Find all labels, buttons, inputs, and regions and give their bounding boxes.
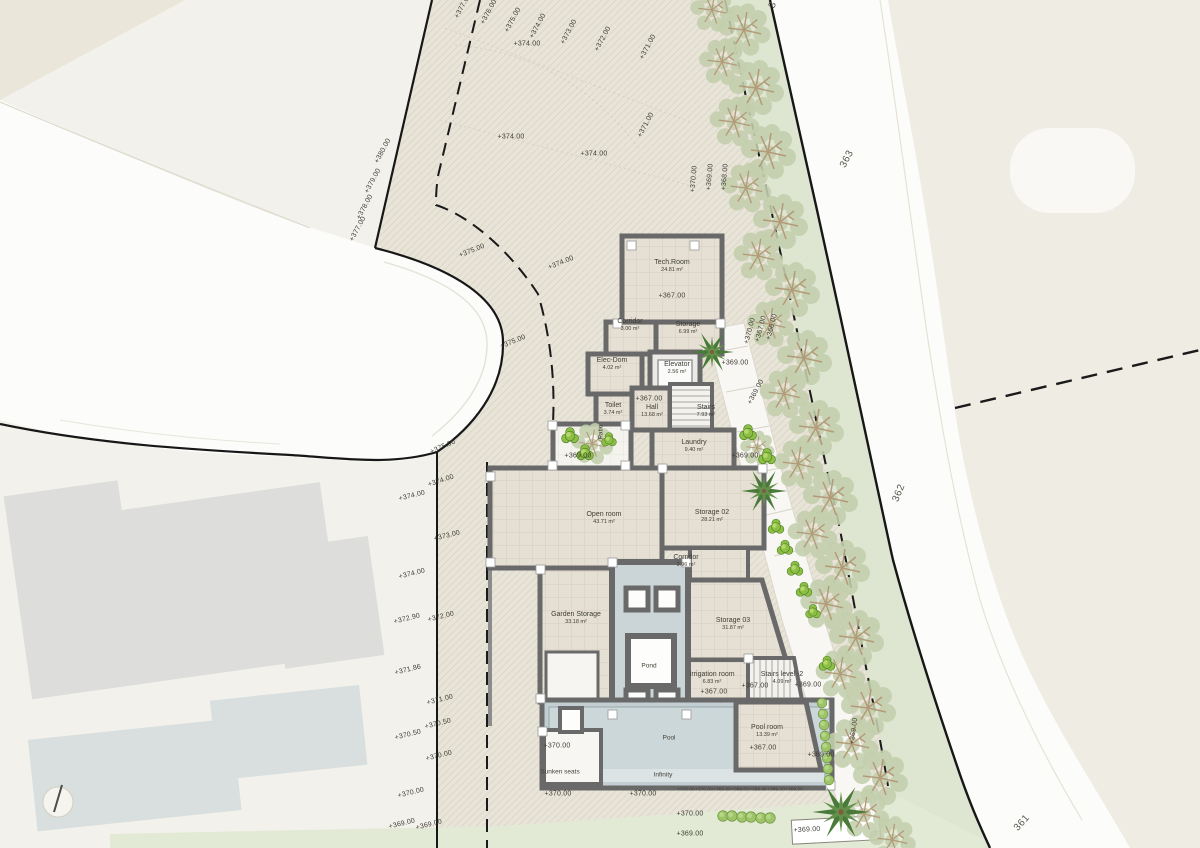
elevation-label: +371.00 bbox=[637, 111, 656, 138]
elevation-label: +375.00 bbox=[429, 438, 456, 455]
room-name: Open room bbox=[586, 511, 621, 519]
room-label: Laundry9.40 m² bbox=[681, 439, 706, 453]
elevation-label: +369.00 bbox=[785, 788, 802, 793]
elevation-label: +370.00 bbox=[544, 743, 571, 750]
room-name: Pool room bbox=[751, 724, 783, 732]
room-area: 6.99 m² bbox=[676, 329, 701, 335]
elevation-label: +369.40 bbox=[749, 788, 766, 793]
room-label: Pool room13.39 m² bbox=[751, 724, 783, 738]
room-name: Hall bbox=[641, 404, 663, 412]
elevation-label: +369.00 bbox=[808, 752, 835, 759]
elevation-label: +369.00 bbox=[722, 360, 749, 367]
feature-label: Patio bbox=[598, 425, 605, 440]
elevation-label: +370.00 bbox=[677, 788, 694, 793]
room-area: 2.56 m² bbox=[664, 369, 690, 375]
elevation-label: +369.00 bbox=[849, 717, 860, 745]
road-number: 363 bbox=[838, 148, 856, 169]
elevation-label: +374.00 bbox=[547, 255, 575, 272]
elevation-label: +369.20 bbox=[767, 788, 784, 793]
elevation-label: +370.00 bbox=[630, 791, 657, 798]
room-name: Elevator bbox=[664, 361, 690, 369]
elevation-label: +369.00 bbox=[388, 817, 416, 830]
elevation-label: +370.00 bbox=[689, 165, 698, 192]
elevation-label: +369.00 bbox=[705, 163, 714, 190]
room-name: Storage 03 bbox=[716, 617, 750, 625]
elevation-label: +371.00 bbox=[426, 693, 454, 706]
room-name: Garden Storage bbox=[551, 611, 601, 619]
elevation-label: +370.50 bbox=[424, 717, 452, 730]
elevation-label: +369.00 bbox=[415, 818, 443, 831]
room-area: 43.71 m² bbox=[586, 519, 621, 525]
elevation-label: +367.00 bbox=[636, 396, 663, 403]
room-label: Hall13.68 m² bbox=[641, 404, 663, 418]
elevation-label: +378.00 bbox=[356, 193, 375, 220]
road-number: 362 bbox=[890, 483, 907, 504]
room-name: Storage bbox=[676, 321, 701, 329]
elevation-label: +371.00 bbox=[639, 33, 658, 60]
elevation-label: +374.00 bbox=[514, 41, 541, 48]
room-area: 31.87 m² bbox=[716, 625, 750, 631]
elevation-label: +367.00 bbox=[659, 293, 686, 300]
elevation-label: +375.00 bbox=[499, 334, 527, 351]
elevation-label: +370.00 bbox=[677, 811, 704, 818]
elevation-label: +374.00 bbox=[398, 489, 426, 502]
elevation-label: +371.86 bbox=[394, 663, 422, 676]
elevation-label: +374.00 bbox=[498, 134, 525, 141]
room-area: 9.40 m² bbox=[681, 447, 706, 453]
feature-label: Sunken seats bbox=[540, 769, 579, 776]
room-name: Storage 02 bbox=[695, 509, 729, 517]
elevation-label: +370.00 bbox=[397, 786, 425, 799]
road-number: 361 bbox=[1012, 813, 1032, 834]
elevation-label: +370.00 bbox=[695, 788, 712, 793]
elevation-label: +370.00 bbox=[425, 749, 453, 762]
elevation-label: +374.00 bbox=[581, 151, 608, 158]
room-name: Corridor bbox=[617, 318, 642, 326]
room-name: Corridor bbox=[673, 554, 698, 562]
elevation-label: +377.00 bbox=[454, 0, 473, 20]
room-name: Toilet bbox=[604, 402, 623, 410]
elevation-label: +375.00 bbox=[458, 243, 486, 260]
elevation-label: +374.00 bbox=[427, 474, 455, 489]
elevation-label: +375.00 bbox=[504, 6, 523, 33]
elevation-label: +369.60 bbox=[731, 788, 748, 793]
elevation-label: +367.00 bbox=[750, 745, 777, 752]
elevation-label: +369.00 bbox=[793, 826, 820, 834]
room-area: 3.74 m² bbox=[604, 410, 623, 416]
room-area: 4.02 m² bbox=[597, 365, 628, 371]
room-label: Stairs7.93 m² bbox=[697, 404, 716, 418]
road-number: 3 bbox=[767, 0, 779, 9]
room-label: Elec-Dom4.02 m² bbox=[597, 357, 628, 371]
elevation-label: +367.00 bbox=[701, 689, 728, 696]
feature-label: Infinity bbox=[654, 772, 673, 779]
room-area: 7.93 m² bbox=[697, 412, 716, 418]
elevation-label: +372.90 bbox=[393, 612, 421, 625]
elevation-label: +374.00 bbox=[529, 12, 548, 39]
elevation-label: +373.00 bbox=[560, 18, 579, 45]
room-label: Open room43.71 m² bbox=[586, 511, 621, 525]
elevation-label: +372.00 bbox=[594, 25, 613, 52]
room-label: Storage6.99 m² bbox=[676, 321, 701, 335]
room-area: 6.83 m² bbox=[689, 679, 734, 685]
site-plan: +377.00+376.00+375.00+374.00+373.00+372.… bbox=[0, 0, 1200, 848]
room-area: 24.81 m² bbox=[654, 267, 689, 273]
elevation-label: +370.00 bbox=[545, 791, 572, 798]
elevation-label: +369.80 bbox=[713, 788, 730, 793]
room-label: Irrigation room6.83 m² bbox=[689, 671, 734, 685]
room-label: Garden Storage33.18 m² bbox=[551, 611, 601, 625]
room-label: Toilet3.74 m² bbox=[604, 402, 623, 416]
room-area: 13.68 m² bbox=[641, 412, 663, 418]
room-area: 4.09 m² bbox=[761, 679, 803, 685]
elevation-label: +373.00 bbox=[433, 529, 461, 542]
room-name: Irrigation room bbox=[689, 671, 734, 679]
elevation-label: +369.00 bbox=[747, 378, 766, 405]
feature-label: Pool bbox=[662, 735, 675, 742]
elevation-label: +379.00 bbox=[364, 167, 383, 194]
elevation-label: +374.00 bbox=[398, 567, 426, 580]
elevation-label: +377.00 bbox=[349, 215, 368, 242]
elevation-label: +368.00 bbox=[720, 163, 729, 190]
elevation-label: +370.50 bbox=[394, 728, 422, 741]
room-name: Laundry bbox=[681, 439, 706, 447]
room-area: 3.00 m² bbox=[617, 326, 642, 332]
room-label: Stairs level -24.09 m² bbox=[761, 671, 803, 685]
room-label: Storage 0331.87 m² bbox=[716, 617, 750, 631]
room-area: 13.39 m² bbox=[751, 732, 783, 738]
room-label: Corridor3.00 m² bbox=[617, 318, 642, 332]
feature-label: Pond bbox=[641, 663, 656, 670]
elevation-label: +380.00 bbox=[374, 137, 393, 164]
elevation-label: +369.00 bbox=[732, 453, 759, 460]
elevation-label: +369.00 bbox=[565, 453, 592, 460]
room-name: Elec-Dom bbox=[597, 357, 628, 365]
room-name: Stairs bbox=[697, 404, 716, 412]
room-area: 33.18 m² bbox=[551, 619, 601, 625]
plan-labels: +377.00+376.00+375.00+374.00+373.00+372.… bbox=[0, 0, 1200, 848]
room-label: Elevator2.56 m² bbox=[664, 361, 690, 375]
room-area: 2.96 m² bbox=[673, 562, 698, 568]
room-area: 28.21 m² bbox=[695, 517, 729, 523]
room-label: Storage 0228.21 m² bbox=[695, 509, 729, 523]
elevation-label: +372.00 bbox=[427, 610, 455, 623]
elevation-label: +369.00 bbox=[677, 831, 704, 838]
room-name: Stairs level -2 bbox=[761, 671, 803, 679]
room-label: Tech.Room24.81 m² bbox=[654, 259, 689, 273]
room-name: Tech.Room bbox=[654, 259, 689, 267]
elevation-label: +376.00 bbox=[480, 0, 499, 26]
room-label: Corridor2.96 m² bbox=[673, 554, 698, 568]
